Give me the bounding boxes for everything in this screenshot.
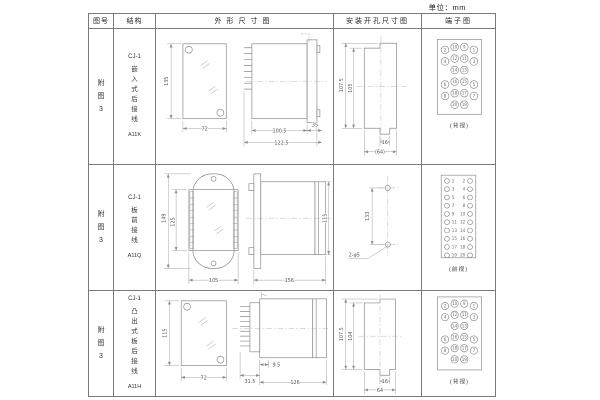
svg-text:4: 4 <box>444 58 447 63</box>
svg-text:7: 7 <box>473 348 476 353</box>
header-structure: 结构 <box>114 14 156 29</box>
dim-outer: 107.5 <box>338 78 344 92</box>
svg-text:17: 17 <box>452 244 458 249</box>
row2-mounting-drawing: 133 2-φ5 <box>335 166 421 290</box>
row3-terminal-cell: (背视) 2109141211314136161558181772019 <box>422 291 495 396</box>
header-mounting: 安装开孔尺寸图 <box>334 14 422 29</box>
svg-text:8: 8 <box>444 93 447 98</box>
svg-text:13: 13 <box>452 227 458 232</box>
row1-mounting-drawing: 107.5 105 16 (64) <box>335 30 421 164</box>
svg-text:15: 15 <box>462 79 468 84</box>
row2-fig-no: 附图3 <box>89 165 114 291</box>
svg-text:16: 16 <box>452 335 458 340</box>
row2-outline-cell: 149 125 105 156 115 <box>156 165 334 291</box>
terminal-pins-icon <box>244 47 252 88</box>
row1-terminal-cell: (背视) 2109141211314136161558181772019 <box>422 29 495 165</box>
dim-total: (64) <box>374 149 384 155</box>
dim-len1: 100.5 <box>272 128 286 134</box>
dim-inner-height: 125 <box>170 217 176 226</box>
row3-model: A11H <box>128 383 141 392</box>
svg-text:20: 20 <box>452 357 458 362</box>
screw-hatch-icon <box>198 317 215 348</box>
header-outline: 外形尺寸图 <box>156 14 334 29</box>
dim-total: 64 <box>376 388 382 394</box>
dim-slot: 16 <box>381 379 387 385</box>
screw-hatch-icon <box>206 202 223 233</box>
svg-text:15: 15 <box>462 335 468 340</box>
svg-text:9: 9 <box>452 211 455 216</box>
svg-text:5: 5 <box>473 81 476 86</box>
dim-base: 31.5 <box>244 379 255 385</box>
svg-text:12: 12 <box>452 312 458 317</box>
row2-mounting-cell: 133 2-φ5 <box>334 165 422 291</box>
row1-structure-type: 嵌入式后接线 <box>131 65 138 125</box>
row3-series: CJ-1 <box>128 295 141 304</box>
row3-mounting-drawing: 107.5 104 16 64 <box>335 291 421 396</box>
document-page: 单位：mm 图号 结构 外形尺寸图 安装开孔尺寸图 端子图 附图3 CJ-1 嵌… <box>0 0 600 400</box>
dim-width: 72 <box>201 126 207 132</box>
svg-text:13: 13 <box>462 67 468 72</box>
row2-structure: CJ-1 板前接线 A11Q <box>114 165 156 291</box>
svg-text:18: 18 <box>452 90 458 95</box>
dim-holes: 2-φ5 <box>348 252 359 258</box>
row2-structure-type: 板前接线 <box>131 206 138 246</box>
row1-view-label: (背视) <box>450 121 469 129</box>
row2-model: A11Q <box>128 252 142 261</box>
row3-structure: CJ-1 凸出式板后接线 A11H <box>114 291 156 396</box>
dim-length: 156 <box>284 278 293 284</box>
svg-text:6: 6 <box>463 194 466 199</box>
row2-view-label: (前视) <box>449 265 468 273</box>
svg-text:16: 16 <box>460 236 466 241</box>
dim-width: 72 <box>200 375 206 381</box>
svg-text:19: 19 <box>462 102 468 107</box>
svg-text:2: 2 <box>444 303 447 308</box>
dim-len2: 122.5 <box>274 140 288 146</box>
svg-text:8: 8 <box>463 203 466 208</box>
dim-width: 105 <box>208 278 217 284</box>
terminal-strip-icon <box>189 191 193 248</box>
svg-text:14: 14 <box>452 67 458 72</box>
row1-model: A11K <box>128 131 141 140</box>
dim-offset: 9.5 <box>272 363 280 369</box>
svg-text:12: 12 <box>460 219 466 224</box>
svg-text:1: 1 <box>473 47 476 52</box>
svg-text:6: 6 <box>444 81 447 86</box>
svg-text:19: 19 <box>452 252 458 257</box>
row3-outline-cell: 115 72 9.5 31.5 126 <box>156 291 334 396</box>
svg-text:16: 16 <box>452 79 458 84</box>
spec-table: 图号 结构 外形尺寸图 安装开孔尺寸图 端子图 附图3 CJ-1 嵌入式后接线 … <box>88 13 496 397</box>
svg-text:6: 6 <box>444 337 447 342</box>
svg-text:14: 14 <box>460 227 466 232</box>
row3-view-label: (背视) <box>450 377 469 385</box>
svg-text:18: 18 <box>460 244 466 249</box>
row2-outline-drawing: 149 125 105 156 115 <box>157 166 333 290</box>
svg-text:18: 18 <box>452 346 458 351</box>
row3-outline-drawing: 115 72 9.5 31.5 126 <box>157 291 333 396</box>
dim-height: 149 <box>161 213 167 222</box>
svg-text:3: 3 <box>473 58 476 63</box>
svg-text:8: 8 <box>444 348 447 353</box>
row2-terminal-cell: (前视) 1234567891011121314151617181920 <box>422 165 495 291</box>
svg-text:4: 4 <box>444 315 447 320</box>
header-fig-no: 图号 <box>89 14 114 29</box>
row1-outline-cell: 135 72 100.5 35 122.5 <box>156 29 334 165</box>
dim-inner: 104 <box>348 332 354 341</box>
row3-fig-no: 附图3 <box>89 291 114 396</box>
svg-text:3: 3 <box>452 186 455 191</box>
dim-spacing: 133 <box>365 211 371 220</box>
row1-outline-drawing: 135 72 100.5 35 122.5 <box>157 30 333 164</box>
dim-height: 135 <box>164 76 170 85</box>
row1-series: CJ-1 <box>128 53 141 62</box>
row1-structure: CJ-1 嵌入式后接线 A11K <box>114 29 156 165</box>
terminal-strip-icon <box>233 191 237 248</box>
svg-text:5: 5 <box>452 194 455 199</box>
svg-text:15: 15 <box>452 236 458 241</box>
svg-text:14: 14 <box>452 323 458 328</box>
svg-text:19: 19 <box>462 357 468 362</box>
row3-terminal-diagram: (背视) 2109141211314136161558181772019 <box>422 291 495 396</box>
svg-text:11: 11 <box>452 219 458 224</box>
svg-text:4: 4 <box>463 186 466 191</box>
svg-text:11: 11 <box>462 312 468 317</box>
header-terminal: 端子图 <box>422 14 495 29</box>
svg-text:7: 7 <box>452 203 455 208</box>
svg-text:10: 10 <box>452 44 458 49</box>
dim-length: 126 <box>290 380 299 386</box>
row2-terminal-diagram: (前视) 1234567891011121314151617181920 <box>422 166 495 290</box>
svg-text:7: 7 <box>473 93 476 98</box>
svg-text:9: 9 <box>463 44 466 49</box>
row1-terminal-diagram: (背视) 2109141211314136161558181772019 <box>422 30 495 164</box>
svg-text:13: 13 <box>462 323 468 328</box>
svg-text:17: 17 <box>462 346 468 351</box>
svg-text:10: 10 <box>452 301 458 306</box>
row1-fig-no: 附图3 <box>89 29 114 165</box>
svg-text:12: 12 <box>452 56 458 61</box>
svg-text:2: 2 <box>444 47 447 52</box>
svg-text:1: 1 <box>473 303 476 308</box>
svg-text:3: 3 <box>473 315 476 320</box>
dim-inner: 105 <box>348 83 354 92</box>
svg-text:5: 5 <box>473 337 476 342</box>
svg-text:1: 1 <box>452 178 455 183</box>
unit-label: 单位：mm <box>429 2 467 13</box>
svg-text:10: 10 <box>460 211 466 216</box>
svg-text:11: 11 <box>462 56 468 61</box>
row3-mounting-cell: 107.5 104 16 64 <box>334 291 422 396</box>
screw-hatch-icon <box>200 60 217 94</box>
svg-text:9: 9 <box>463 301 466 306</box>
dim-outer: 107.5 <box>338 327 344 341</box>
dim-side-height: 115 <box>322 213 328 222</box>
dim-flange: 35 <box>311 122 317 128</box>
svg-text:17: 17 <box>462 90 468 95</box>
terminal-pins-icon <box>240 307 250 346</box>
row2-series: CJ-1 <box>128 194 141 203</box>
dim-slot: 16 <box>381 139 387 145</box>
svg-text:2: 2 <box>463 178 466 183</box>
row3-structure-type: 凸出式板后接线 <box>131 307 138 377</box>
svg-text:20: 20 <box>460 252 466 257</box>
dim-height: 115 <box>162 329 168 338</box>
row1-mounting-cell: 107.5 105 16 (64) <box>334 29 422 165</box>
svg-text:20: 20 <box>452 102 458 107</box>
